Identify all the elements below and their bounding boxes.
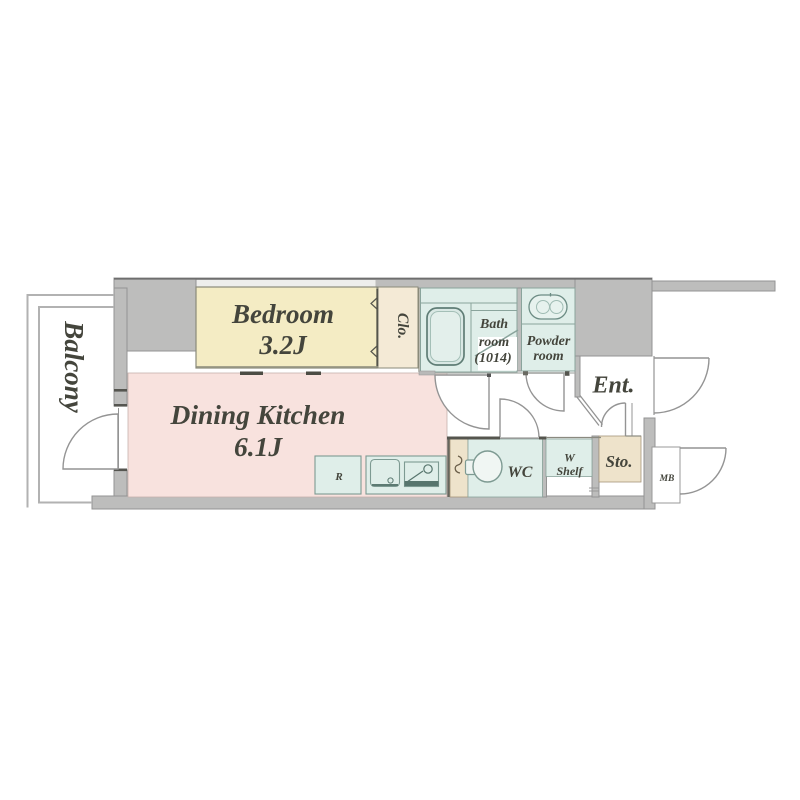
svg-text:Clo.: Clo. [394, 313, 411, 339]
svg-text:6.1J: 6.1J [234, 431, 283, 462]
svg-text:Shelf: Shelf [556, 464, 583, 478]
svg-text:MB: MB [659, 474, 675, 484]
svg-text:W: W [564, 451, 576, 465]
svg-text:3.2J: 3.2J [258, 330, 308, 360]
svg-text:R: R [334, 471, 342, 483]
svg-text:Bath: Bath [479, 317, 508, 332]
svg-text:WC: WC [508, 464, 533, 481]
svg-text:Bedroom: Bedroom [231, 299, 334, 329]
svg-text:Sto.: Sto. [606, 452, 633, 471]
svg-text:room: room [479, 335, 509, 350]
svg-text:Powder: Powder [527, 334, 571, 349]
svg-text:room: room [533, 349, 563, 364]
svg-text:Balcony: Balcony [59, 320, 89, 414]
svg-text:(1014): (1014) [474, 351, 511, 366]
svg-text:Dining Kitchen: Dining Kitchen [170, 399, 346, 430]
svg-text:Ent.: Ent. [591, 373, 634, 399]
